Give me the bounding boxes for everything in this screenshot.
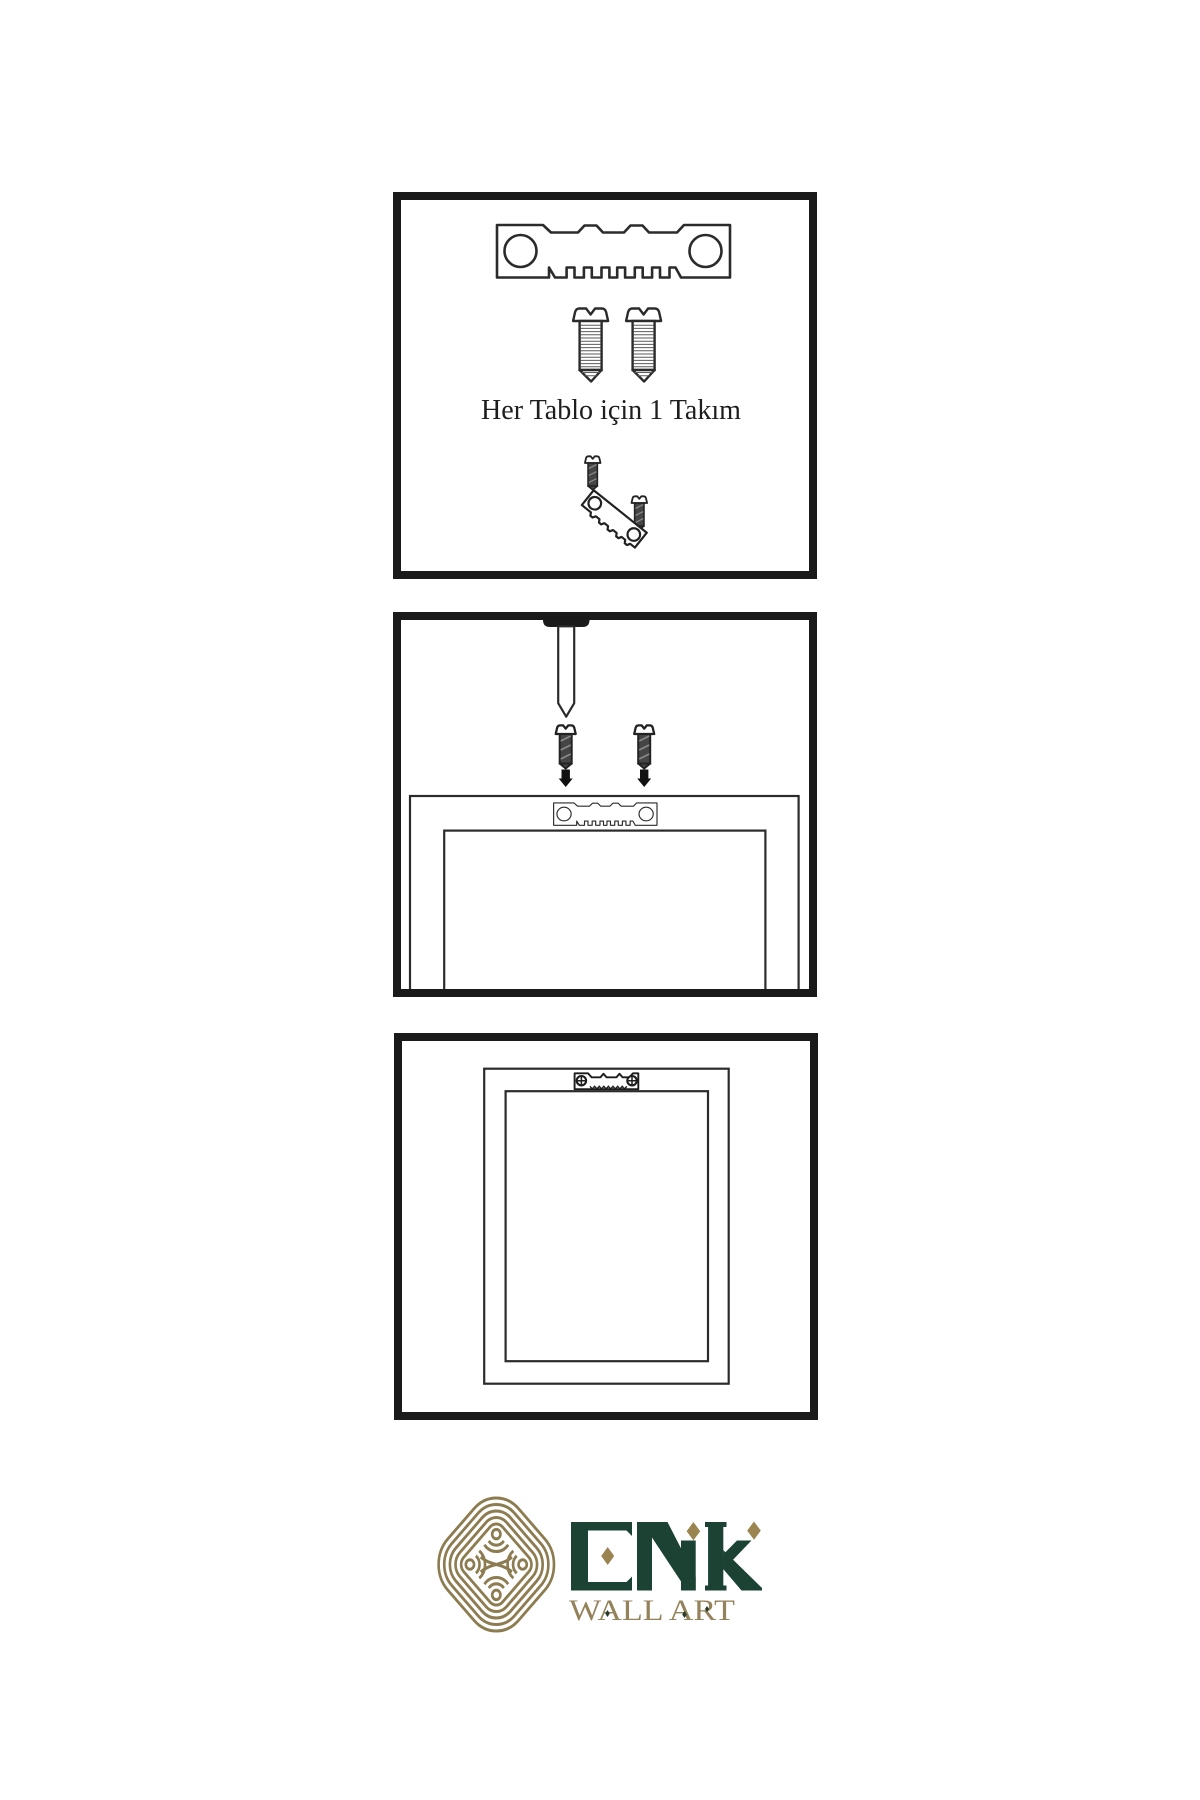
svg-text:WALL ART: WALL ART <box>569 1594 735 1627</box>
svg-text:Her Tablo için 1 Takım: Her Tablo için 1 Takım <box>481 394 741 426</box>
